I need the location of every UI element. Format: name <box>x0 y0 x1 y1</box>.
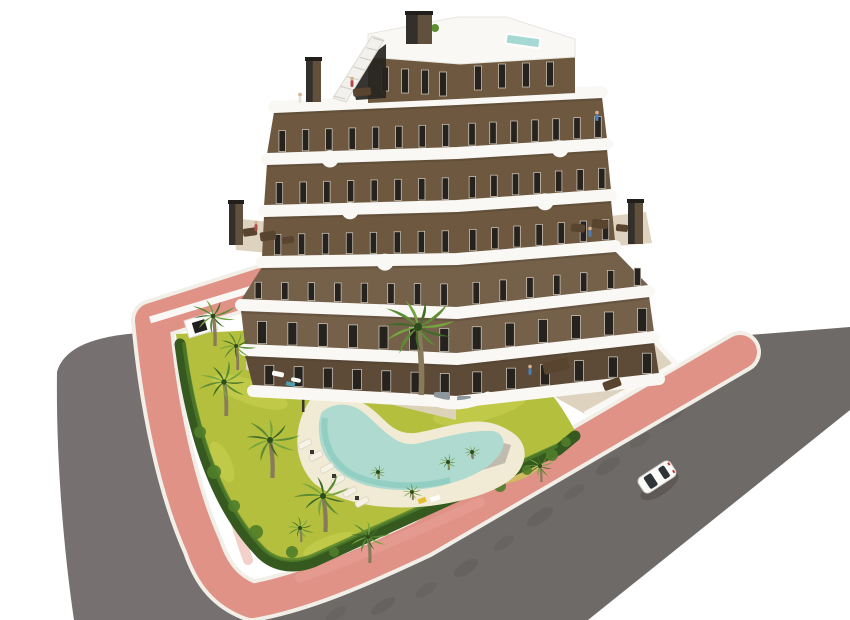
window <box>394 232 401 253</box>
window <box>491 175 498 196</box>
bush <box>194 426 206 438</box>
scene-render <box>0 0 850 620</box>
penthouse-window <box>523 63 530 87</box>
window <box>634 268 641 285</box>
palm-crown <box>376 470 380 474</box>
person <box>351 80 354 87</box>
window <box>514 226 521 247</box>
window <box>642 353 651 373</box>
terrace-furniture <box>571 223 586 232</box>
palm-crown <box>470 450 474 454</box>
window <box>396 126 403 148</box>
palm-crown <box>211 314 216 319</box>
window <box>349 325 358 348</box>
window <box>326 129 333 150</box>
chimney-cap <box>405 11 433 15</box>
window <box>372 127 379 149</box>
bush <box>286 546 298 558</box>
person <box>255 224 258 231</box>
person <box>299 96 302 103</box>
window <box>288 323 297 345</box>
window <box>532 120 539 141</box>
window <box>388 283 395 303</box>
palm-crown <box>221 379 226 384</box>
window <box>308 283 315 301</box>
window <box>442 124 449 146</box>
curved-balcony-bulge <box>537 193 554 210</box>
palm-crown <box>410 490 414 494</box>
window <box>346 233 353 254</box>
window <box>300 182 307 203</box>
window <box>282 282 289 299</box>
window <box>470 229 477 250</box>
window <box>538 319 547 342</box>
person-head <box>588 227 592 231</box>
window <box>414 284 421 305</box>
window <box>318 324 327 347</box>
window <box>361 283 368 302</box>
curved-balcony-bulge <box>342 202 359 219</box>
window <box>580 273 587 292</box>
window <box>511 121 518 143</box>
window <box>638 308 647 331</box>
penthouse-window <box>547 62 554 86</box>
window <box>507 368 516 389</box>
side-table <box>332 474 336 478</box>
bush <box>207 465 221 479</box>
window <box>335 283 342 302</box>
window <box>276 183 283 204</box>
window <box>553 119 560 140</box>
window <box>505 323 514 346</box>
palm-crown <box>298 526 302 530</box>
bush <box>522 465 532 475</box>
window <box>370 232 377 253</box>
window <box>440 328 449 351</box>
palm-crown <box>446 460 450 464</box>
window <box>323 368 332 388</box>
window <box>379 326 388 349</box>
bush <box>546 449 558 461</box>
window <box>382 371 391 391</box>
window <box>599 168 606 188</box>
window <box>441 284 448 306</box>
bush <box>249 525 263 539</box>
window <box>512 174 519 195</box>
window <box>322 233 329 254</box>
window <box>575 361 584 381</box>
window <box>536 224 543 245</box>
person-head <box>595 111 599 115</box>
person-head <box>298 93 302 97</box>
side-table <box>310 450 314 454</box>
window <box>255 282 262 298</box>
penthouse-window <box>475 66 482 90</box>
render-canvas <box>0 0 850 620</box>
curved-balcony-bulge <box>377 254 394 271</box>
person <box>589 230 592 237</box>
window <box>492 228 499 249</box>
window <box>353 369 362 389</box>
penthouse-window <box>402 69 409 93</box>
window <box>607 270 614 288</box>
window <box>395 179 402 200</box>
window <box>469 177 476 198</box>
curved-balcony-bulge <box>322 151 339 168</box>
chimney-cap <box>305 57 322 61</box>
bush <box>329 547 339 557</box>
window <box>605 312 614 335</box>
penthouse-window <box>440 72 447 96</box>
window <box>265 365 274 385</box>
window <box>442 178 449 199</box>
window <box>473 282 480 304</box>
palm-crown <box>234 344 238 348</box>
chimney-shaded-side <box>406 14 418 44</box>
window <box>527 278 534 298</box>
window <box>558 223 565 244</box>
chimney-cap <box>228 200 244 204</box>
window <box>534 172 541 193</box>
palm-crown <box>366 535 370 539</box>
chimney-cap <box>627 199 644 203</box>
window <box>440 374 449 395</box>
window <box>347 181 354 202</box>
window <box>577 170 584 191</box>
window <box>555 171 562 192</box>
palm-crown <box>414 323 422 331</box>
terrace-furniture <box>592 219 609 230</box>
palm-crown <box>320 493 326 499</box>
window <box>371 180 378 201</box>
rooftop-terrace <box>368 17 575 64</box>
window <box>302 130 309 151</box>
window <box>418 231 425 252</box>
window <box>500 280 507 301</box>
window <box>442 231 449 252</box>
person-head <box>254 221 258 225</box>
window <box>490 122 497 144</box>
window <box>574 118 581 139</box>
person-head <box>528 365 532 369</box>
window <box>473 372 482 393</box>
curved-balcony-bulge <box>552 140 569 157</box>
window <box>349 128 356 149</box>
window <box>418 179 425 200</box>
person <box>529 368 532 375</box>
chimney-shaded-side <box>628 202 635 244</box>
window <box>294 367 303 387</box>
window <box>279 131 286 152</box>
window <box>298 234 305 255</box>
person-head <box>350 77 354 81</box>
window <box>469 123 476 145</box>
window <box>571 316 580 339</box>
window <box>608 357 617 377</box>
palm-crown <box>538 464 542 468</box>
chimney-shaded-side <box>306 60 313 102</box>
window <box>472 327 481 350</box>
bush <box>228 500 240 512</box>
terrace-furniture <box>616 224 629 232</box>
chimney-shaded-side <box>229 203 235 245</box>
penthouse-window <box>422 70 429 94</box>
palm-crown <box>267 437 273 443</box>
penthouse-window <box>499 64 506 88</box>
window <box>257 321 266 343</box>
window <box>324 181 331 202</box>
bush <box>561 437 571 447</box>
side-table <box>355 496 359 500</box>
rooftop-plant <box>431 24 439 32</box>
window <box>554 275 561 294</box>
window <box>419 125 426 147</box>
person <box>596 114 599 121</box>
